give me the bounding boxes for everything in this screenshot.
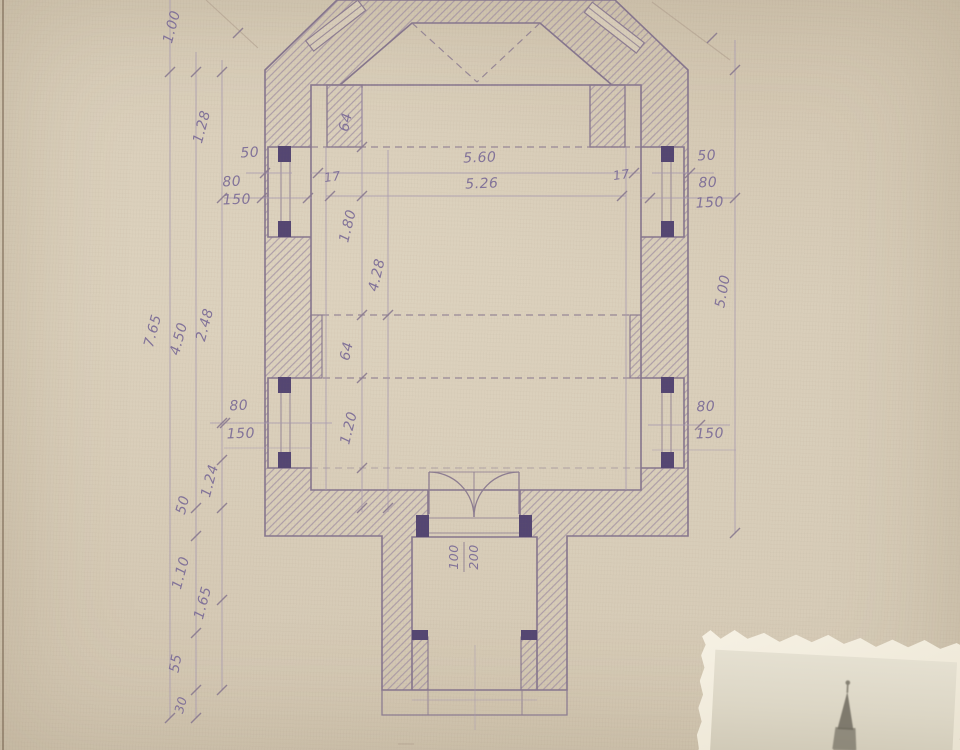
dim-label-left-top-80: 80 [222,174,242,191]
dim-label-door: 100 200 [446,542,481,572]
window-lower-right [661,377,674,468]
dim-label-1-20: 1.20 [337,410,361,446]
door-jamb-right [519,515,532,537]
dim-label-left-top-150: 150 [222,192,251,209]
dim-label-pier-64: 64 [337,340,357,362]
dim-label-right-bot-80: 80 [696,399,715,416]
pier-step-left [311,315,322,378]
dim-label-left-top-50: 50 [240,145,260,162]
dim-label-1-80: 1.80 [336,208,360,244]
dim-label-right-top-50: 50 [697,148,717,165]
dim-label-4-28: 4.28 [366,257,389,293]
door-leaf-arc-right [474,472,519,517]
dim-label-door-height: 200 [466,544,481,569]
dim-label-1-00: 1.00 [160,9,184,45]
dim-label-17-left: 17 [323,168,342,185]
door-leaf-arc-left [429,472,474,517]
dim-label-4-50: 4.50 [167,321,191,357]
dim-label-5-26: 5.26 [465,175,499,192]
dim-label-left-bot-80: 80 [229,398,249,415]
dim-label-door-width: 100 [446,544,461,569]
floor-plan-drawing: 1.00 1.28 7.65 4.50 2.48 50 1.24 1.10 1.… [0,0,960,750]
vestibule-jamb-left [412,630,428,640]
dim-label-7-65: 7.65 [141,313,165,349]
church-steeple-photo [695,627,960,750]
dim-label-right-top-150: 150 [695,194,724,211]
dim-label-right-bot-150: 150 [695,426,724,443]
drawing-sheet: 1.00 1.28 7.65 4.50 2.48 50 1.24 1.10 1.… [0,0,960,750]
dim-label-1-24: 1.24 [198,463,222,499]
dim-label-right-top-80: 80 [698,175,717,192]
dim-label-1-65: 1.65 [191,585,215,621]
steeple-silhouette [709,650,957,750]
dim-label-5-60: 5.60 [463,149,497,166]
door-jamb-left [416,515,429,537]
vestibule-jamb-right [521,630,537,640]
dim-label-50v: 50 [173,494,193,516]
dim-label-left-bot-150: 150 [226,426,255,443]
dim-label-30: 30 [171,695,190,715]
dim-label-1-28: 1.28 [190,109,214,145]
vestibule-step-left [412,637,428,690]
entrance-door [416,472,532,537]
pier-step-right [630,315,641,378]
dim-label-55: 55 [167,653,186,674]
dim-label-2-48: 2.48 [193,307,217,343]
window-upper-left [278,146,291,237]
chancel-stub-right [590,85,625,147]
window-upper-right [661,146,674,237]
dim-label-1-10: 1.10 [169,555,193,591]
vestibule-step-right [521,637,537,690]
photo-image [709,650,957,750]
dim-label-5-00: 5.00 [712,274,734,309]
dim-label-17-right: 17 [612,166,631,183]
walls [265,0,688,690]
